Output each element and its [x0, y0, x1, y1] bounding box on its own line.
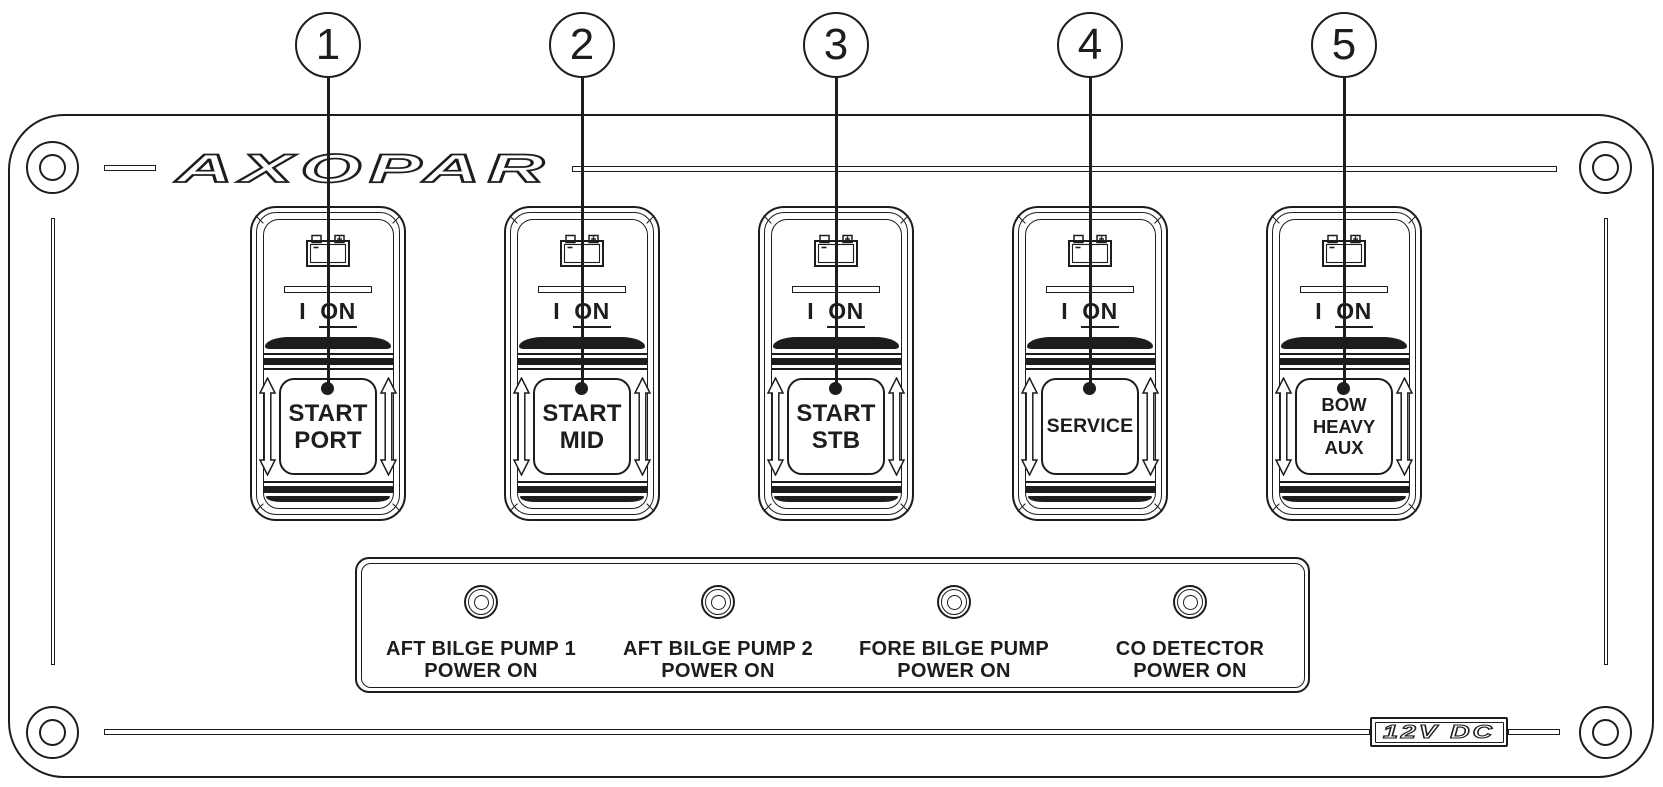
switch-panel-diagram: AXOPAR 1 2 3 4 5 I ON START PORT — [0, 0, 1663, 787]
voltage-badge: 12V DC — [1370, 717, 1508, 747]
rocker-bottom-stripes — [263, 481, 393, 502]
position-label-on: ON — [319, 298, 357, 328]
up-down-arrow-icon — [379, 377, 398, 476]
up-down-arrow-icon — [1141, 377, 1160, 476]
corner-screw-top-left — [26, 141, 79, 194]
indicator-led-fore-bilge-pump — [937, 585, 971, 619]
callout-dot-1 — [321, 382, 334, 395]
indicator-label: FORE BILGE PUMP POWER ON — [824, 639, 1084, 682]
footer-rule-left — [104, 729, 1370, 735]
indicator-label: CO DETECTOR POWER ON — [1060, 639, 1320, 682]
up-down-arrow-icon — [887, 377, 906, 476]
led-lens-icon — [1183, 595, 1198, 610]
callout-dot-3 — [829, 382, 842, 395]
callout-line-1 — [327, 78, 330, 389]
screw-hole-icon — [1592, 154, 1619, 181]
callout-circle-2: 2 — [549, 12, 615, 78]
right-rail-line — [1604, 218, 1608, 665]
callout-number: 4 — [1078, 20, 1102, 70]
led-lens-icon — [474, 595, 489, 610]
position-label-i: I — [553, 298, 560, 325]
switch-label: START STB — [796, 400, 875, 454]
indicator-led-aft-bilge-pump-1 — [464, 585, 498, 619]
up-down-arrow-icon — [1274, 377, 1293, 476]
callout-circle-3: 3 — [803, 12, 869, 78]
logo-dash — [104, 165, 156, 171]
brand-logo-text: AXOPAR — [174, 147, 552, 191]
up-down-arrow-icon — [258, 377, 277, 476]
position-label-i: I — [1315, 298, 1322, 325]
indicator-label: AFT BILGE PUMP 1 POWER ON — [351, 639, 611, 682]
header-rule-line — [572, 166, 1557, 172]
up-down-arrow-icon — [766, 377, 785, 476]
indicator-led-aft-bilge-pump-2 — [701, 585, 735, 619]
position-label-i: I — [299, 298, 306, 325]
up-down-arrow-icon — [633, 377, 652, 476]
callout-dot-5 — [1337, 382, 1350, 395]
up-down-arrow-icon — [512, 377, 531, 476]
position-label-on: ON — [573, 298, 611, 328]
callout-number: 5 — [1332, 20, 1356, 70]
callout-number: 2 — [570, 20, 594, 70]
callout-line-2 — [581, 78, 584, 389]
led-lens-icon — [711, 595, 726, 610]
rocker-bottom-stripes — [517, 481, 647, 502]
switch-label: BOW HEAVY AUX — [1313, 394, 1375, 459]
corner-screw-bottom-left — [26, 706, 79, 759]
callout-circle-4: 4 — [1057, 12, 1123, 78]
callout-line-3 — [835, 78, 838, 389]
position-label-on: ON — [827, 298, 865, 328]
callout-dot-4 — [1083, 382, 1096, 395]
callout-line-4 — [1089, 78, 1092, 389]
rocker-bottom-stripes — [1025, 481, 1155, 502]
voltage-label: 12V DC — [1383, 722, 1495, 742]
position-label-on: ON — [1335, 298, 1373, 328]
callout-line-5 — [1343, 78, 1346, 389]
position-label-i: I — [807, 298, 814, 325]
callout-number: 3 — [824, 20, 848, 70]
corner-screw-bottom-right — [1579, 706, 1632, 759]
switch-label: START PORT — [288, 400, 367, 454]
switch-label: START MID — [542, 400, 621, 454]
callout-circle-1: 1 — [295, 12, 361, 78]
up-down-arrow-icon — [1395, 377, 1414, 476]
voltage-badge-inner-border: 12V DC — [1375, 722, 1504, 743]
corner-screw-top-right — [1579, 141, 1632, 194]
brand-logo: AXOPAR — [168, 146, 560, 192]
rocker-bottom-stripes — [1279, 481, 1409, 502]
position-label-on: ON — [1081, 298, 1119, 328]
left-rail-line — [51, 218, 55, 665]
rocker-bottom-stripes — [771, 481, 901, 502]
callout-dot-2 — [575, 382, 588, 395]
switch-label: SERVICE — [1047, 415, 1134, 438]
up-down-arrow-icon — [1020, 377, 1039, 476]
screw-hole-icon — [1592, 719, 1619, 746]
callout-number: 1 — [316, 20, 340, 70]
screw-hole-icon — [39, 154, 66, 181]
indicator-label: AFT BILGE PUMP 2 POWER ON — [588, 639, 848, 682]
indicator-led-co-detector — [1173, 585, 1207, 619]
screw-hole-icon — [39, 719, 66, 746]
callout-circle-5: 5 — [1311, 12, 1377, 78]
footer-rule-right — [1508, 729, 1560, 735]
position-label-i: I — [1061, 298, 1068, 325]
led-lens-icon — [947, 595, 962, 610]
